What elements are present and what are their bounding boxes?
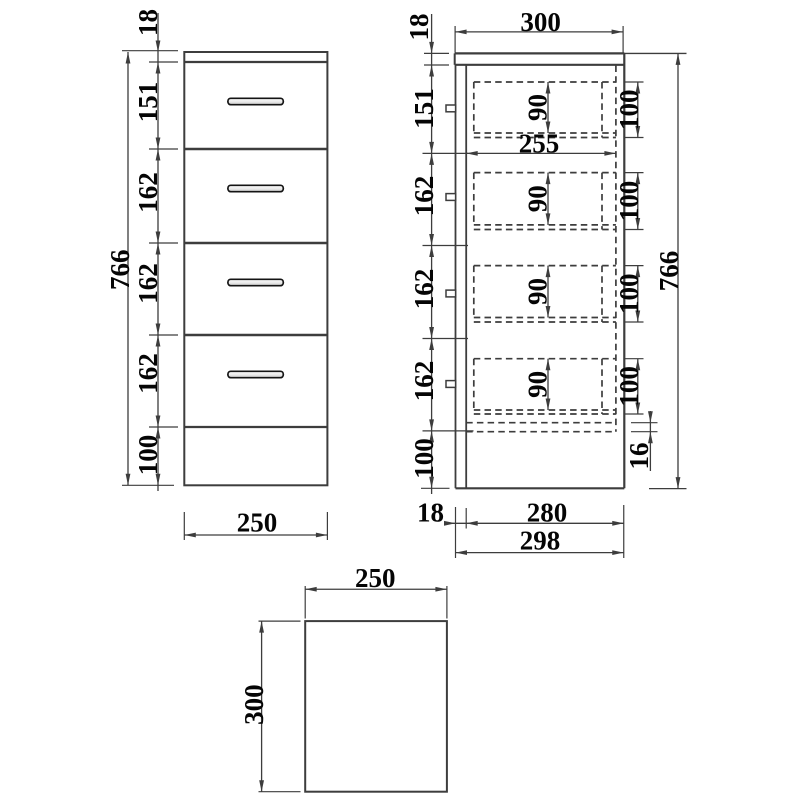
svg-text:100: 100	[133, 435, 163, 476]
svg-text:250: 250	[237, 508, 278, 538]
svg-text:298: 298	[520, 526, 561, 556]
svg-text:162: 162	[409, 269, 439, 310]
svg-text:255: 255	[519, 128, 560, 158]
svg-text:162: 162	[133, 172, 163, 213]
svg-text:16: 16	[624, 443, 654, 470]
svg-text:90: 90	[523, 278, 553, 305]
svg-text:100: 100	[409, 438, 439, 479]
svg-text:151: 151	[409, 88, 439, 129]
svg-text:18: 18	[404, 14, 434, 41]
svg-text:162: 162	[409, 361, 439, 402]
svg-text:100: 100	[614, 274, 644, 315]
svg-text:162: 162	[133, 353, 163, 394]
svg-text:300: 300	[239, 684, 269, 725]
svg-text:250: 250	[355, 563, 396, 593]
svg-text:18: 18	[417, 498, 444, 528]
svg-text:90: 90	[523, 371, 553, 398]
svg-text:766: 766	[105, 250, 135, 291]
svg-text:766: 766	[654, 251, 684, 292]
svg-text:162: 162	[133, 263, 163, 304]
svg-text:300: 300	[520, 7, 561, 37]
svg-text:18: 18	[133, 9, 163, 36]
svg-text:162: 162	[409, 176, 439, 217]
svg-text:100: 100	[614, 181, 644, 222]
svg-text:100: 100	[614, 90, 644, 131]
svg-text:280: 280	[527, 498, 568, 528]
svg-text:151: 151	[133, 82, 163, 123]
svg-text:90: 90	[523, 94, 553, 121]
svg-text:90: 90	[523, 185, 553, 212]
svg-text:100: 100	[614, 366, 644, 407]
